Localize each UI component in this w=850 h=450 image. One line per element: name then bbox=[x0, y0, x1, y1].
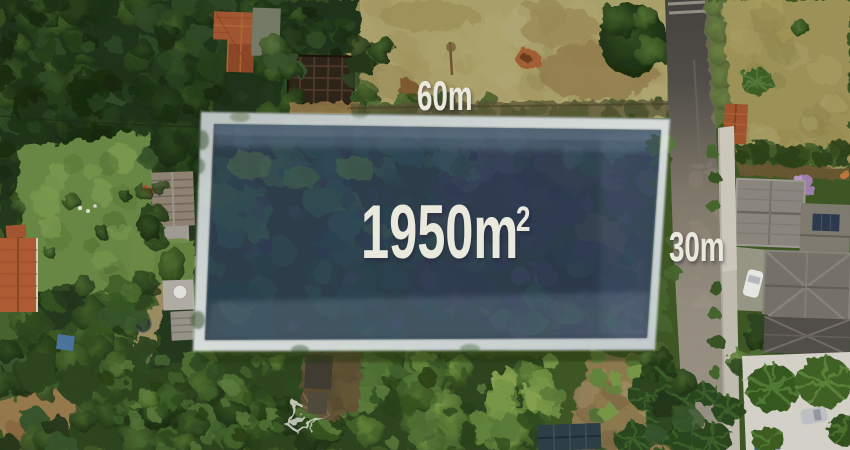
svg-text:2: 2 bbox=[516, 199, 530, 239]
svg-text:30m: 30m bbox=[669, 223, 724, 270]
svg-text:1950m: 1950m bbox=[361, 190, 518, 275]
svg-text:60m: 60m bbox=[417, 72, 472, 119]
